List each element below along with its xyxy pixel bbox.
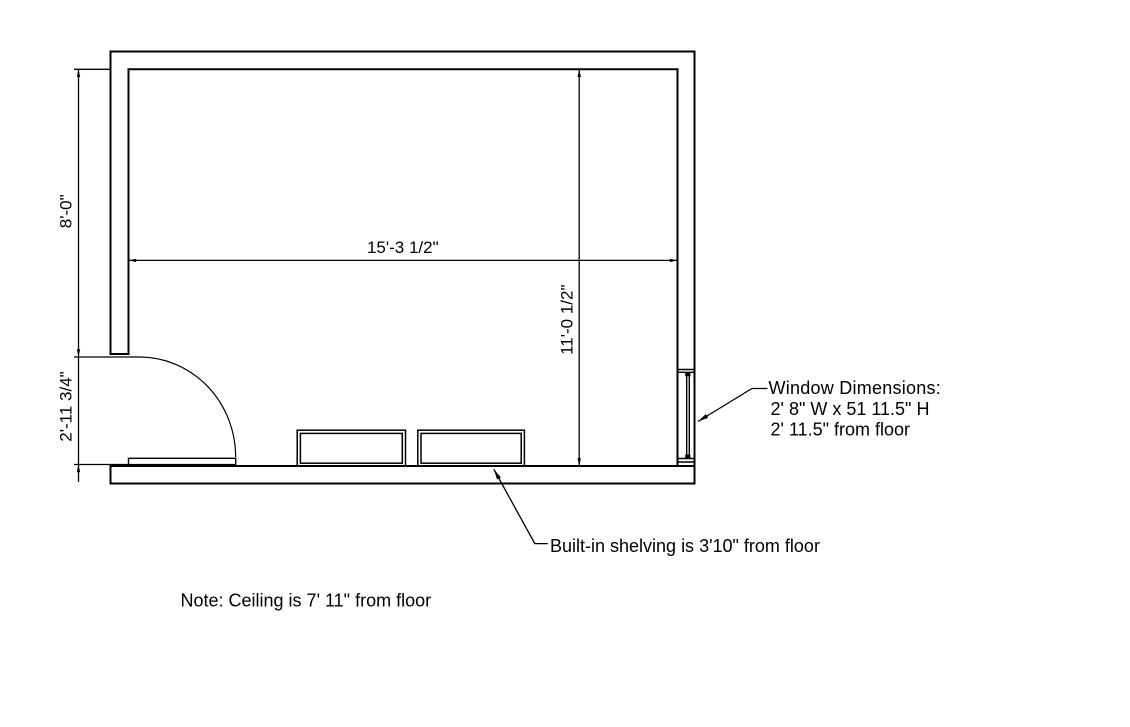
svg-text:Note: Ceiling is 7' 11" from f: Note: Ceiling is 7' 11" from floor bbox=[181, 590, 432, 610]
svg-text:11'-0 1/2": 11'-0 1/2" bbox=[558, 284, 577, 354]
svg-text:2'-11 3/4": 2'-11 3/4" bbox=[57, 371, 76, 441]
svg-text:2' 11.5" from floor: 2' 11.5" from floor bbox=[771, 420, 911, 440]
svg-text:Window Dimensions:: Window Dimensions: bbox=[769, 378, 942, 398]
svg-text:2' 8" W x 51 11.5" H: 2' 8" W x 51 11.5" H bbox=[771, 399, 930, 419]
svg-text:8'-0": 8'-0" bbox=[57, 194, 76, 228]
svg-text:15'-3 1/2": 15'-3 1/2" bbox=[367, 238, 439, 257]
svg-text:Built-in shelving is 3'10" fro: Built-in shelving is 3'10" from floor bbox=[550, 536, 820, 556]
